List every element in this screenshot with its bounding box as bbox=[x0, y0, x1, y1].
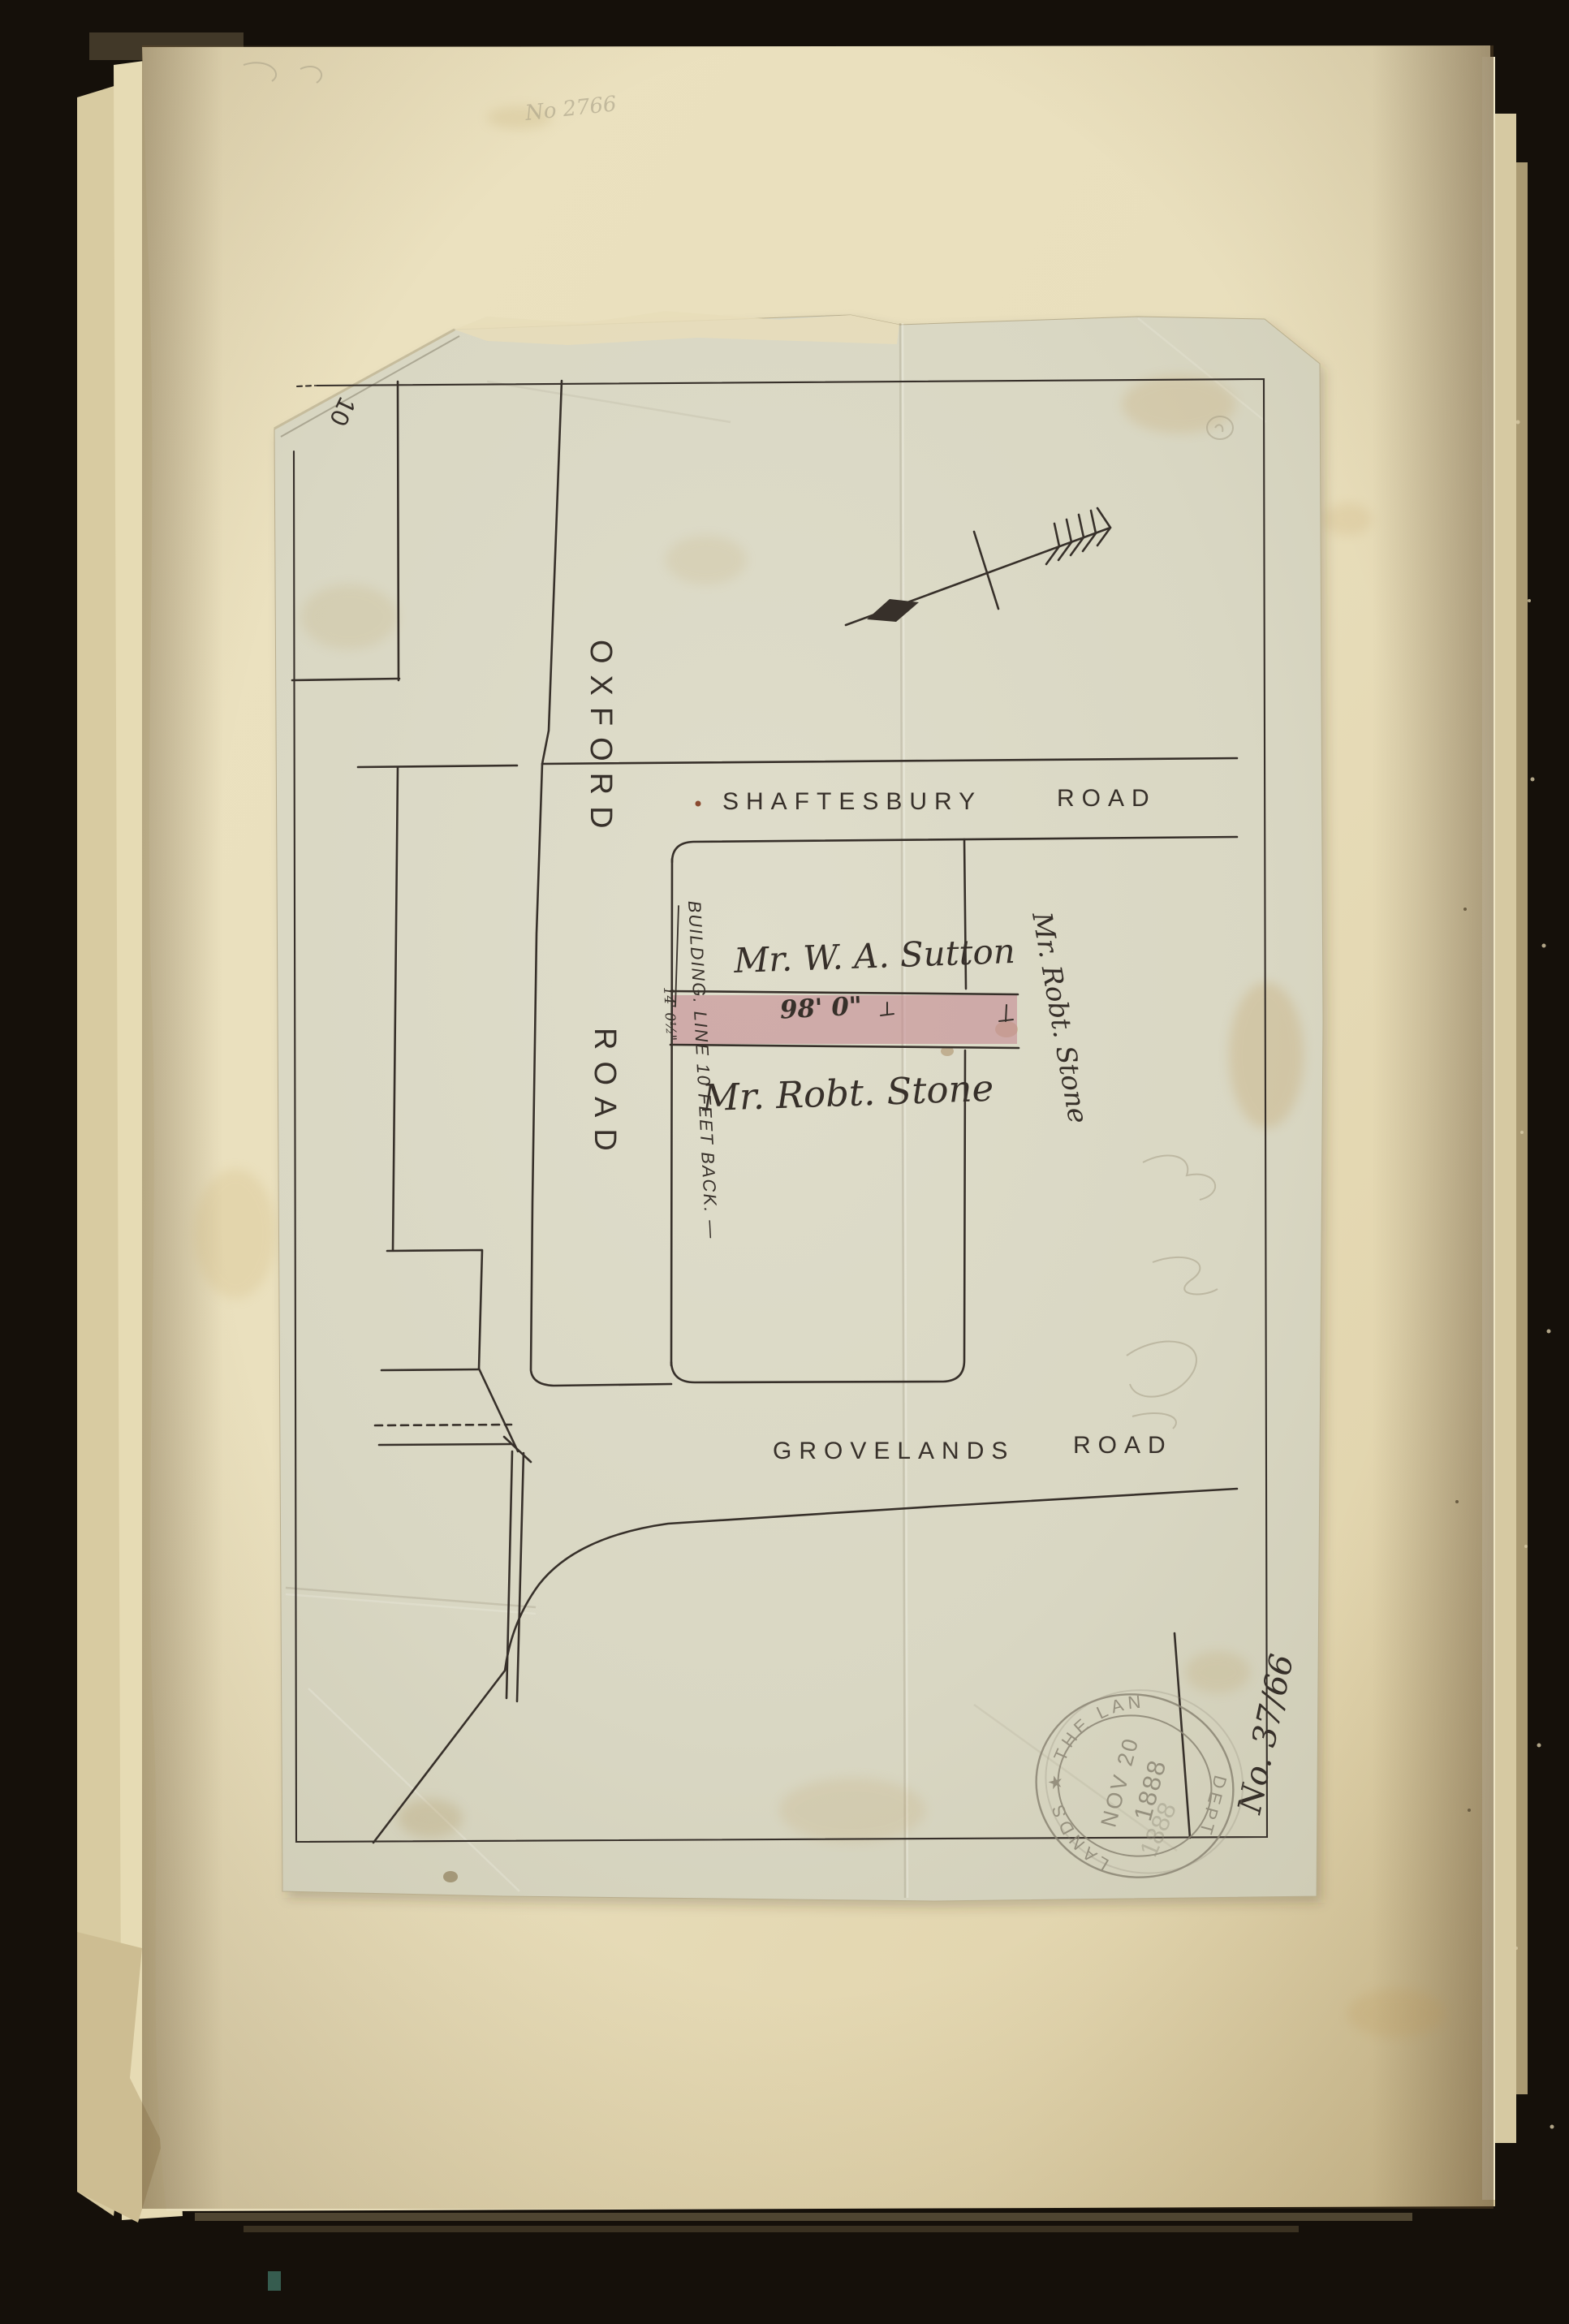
page-stack-edge bbox=[1516, 162, 1528, 2094]
strip-width-dimension: 14' 0½" bbox=[660, 986, 679, 1041]
page-stain bbox=[1323, 503, 1372, 536]
next-page-edge bbox=[1495, 114, 1516, 2143]
shaftesbury-road-label-2: ROAD bbox=[1057, 785, 1157, 812]
binding-cloth-speck bbox=[268, 2271, 281, 2291]
strip-length-dimension: 98' 0" bbox=[779, 991, 863, 1024]
gutter-shadow bbox=[1372, 45, 1494, 2209]
side-street-stub-3 bbox=[379, 1444, 511, 1445]
scanned-book-page: OXFORD ROAD SHAFTESBURY ROAD GROVELANDS … bbox=[0, 0, 1569, 2324]
plan-artwork: OXFORD ROAD SHAFTESBURY ROAD GROVELANDS … bbox=[0, 0, 1569, 2324]
side-street-stub-1 bbox=[381, 1369, 479, 1370]
oxford-road-label-1: OXFORD bbox=[584, 640, 618, 840]
page-stain bbox=[1347, 1989, 1445, 2037]
oxford-west-edge-north bbox=[398, 382, 399, 680]
page-stain bbox=[195, 1169, 276, 1299]
red-speck bbox=[696, 801, 701, 807]
left-edge-shadow bbox=[142, 45, 223, 2209]
grovelands-road-label-2: ROAD bbox=[1073, 1432, 1173, 1459]
block-west-edge bbox=[671, 859, 672, 1365]
grovelands-road-label-1: GROVELANDS bbox=[773, 1438, 1015, 1464]
lower-page-edge-2 bbox=[244, 2226, 1299, 2232]
oxford-road-label-2: ROAD bbox=[588, 1028, 622, 1162]
shaftesbury-road-label-1: SHAFTESBURY bbox=[722, 788, 982, 815]
lower-page-edge-1 bbox=[195, 2213, 1412, 2221]
